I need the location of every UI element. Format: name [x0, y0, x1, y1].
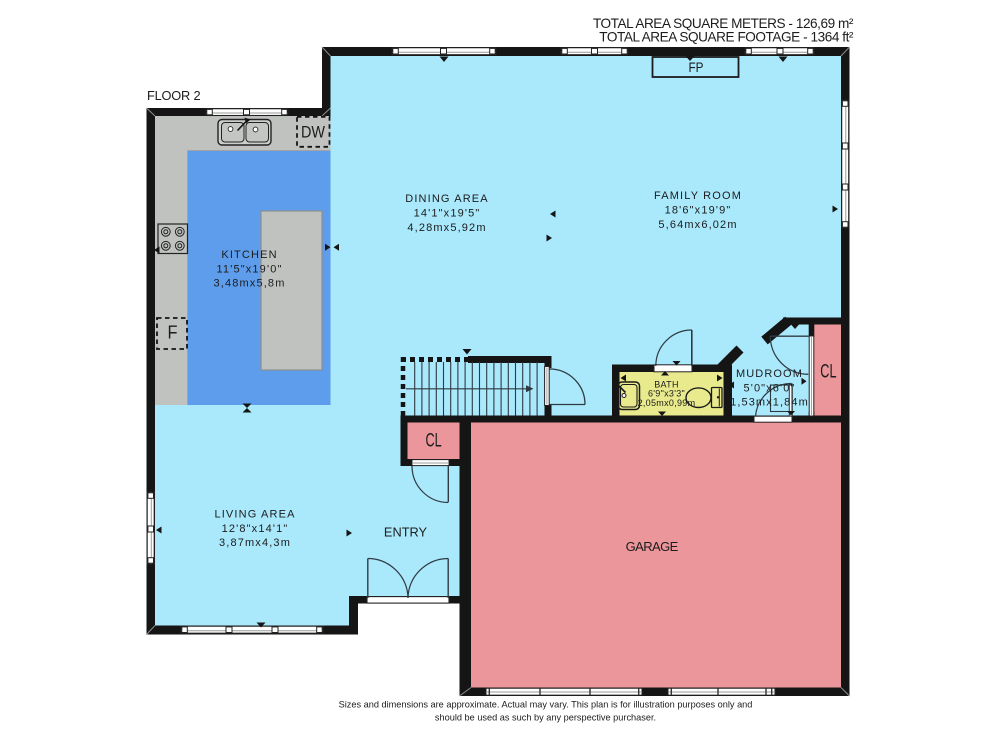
- svg-text:LIVING AREA: LIVING AREA: [214, 509, 295, 521]
- svg-text:DINING AREA: DINING AREA: [405, 193, 489, 205]
- svg-text:CL: CL: [426, 431, 442, 452]
- svg-text:18'6"x19'9": 18'6"x19'9": [665, 204, 732, 216]
- svg-text:DW: DW: [301, 123, 325, 142]
- svg-text:F: F: [168, 323, 178, 343]
- svg-text:3,48mx5,8m: 3,48mx5,8m: [213, 278, 285, 290]
- svg-text:1,53mx1,84m: 1,53mx1,84m: [730, 397, 809, 409]
- svg-text:5,64mx6,02m: 5,64mx6,02m: [658, 219, 737, 231]
- svg-text:TOTAL AREA SQUARE FOOTAGE - 1: TOTAL AREA SQUARE FOOTAGE - 1364 ft²: [599, 30, 854, 45]
- svg-text:KITCHEN: KITCHEN: [221, 249, 277, 261]
- svg-text:2,05mx0,99m: 2,05mx0,99m: [638, 398, 696, 408]
- svg-text:5'0"x6'0": 5'0"x6'0": [744, 382, 796, 394]
- svg-text:CL: CL: [820, 362, 836, 383]
- svg-text:should be used as such by any: should be used as such by any perspectiv…: [435, 713, 656, 723]
- svg-text:4,28mx5,92m: 4,28mx5,92m: [407, 222, 486, 234]
- svg-text:FLOOR 2: FLOOR 2: [147, 88, 200, 103]
- svg-text:FAMILY ROOM: FAMILY ROOM: [654, 190, 742, 202]
- svg-text:GARAGE: GARAGE: [626, 539, 679, 554]
- svg-text:FP: FP: [689, 59, 704, 75]
- svg-text:14'1"x19'5": 14'1"x19'5": [414, 208, 481, 220]
- svg-text:3,87mx4,3m: 3,87mx4,3m: [219, 537, 291, 549]
- svg-text:Sizes and dimensions are appro: Sizes and dimensions are approximate. Ac…: [339, 700, 753, 710]
- svg-text:11'5"x19'0": 11'5"x19'0": [216, 263, 282, 275]
- svg-text:ENTRY: ENTRY: [384, 525, 428, 540]
- svg-text:MUDROOM: MUDROOM: [736, 368, 803, 380]
- svg-text:12'8"x14'1": 12'8"x14'1": [222, 523, 289, 535]
